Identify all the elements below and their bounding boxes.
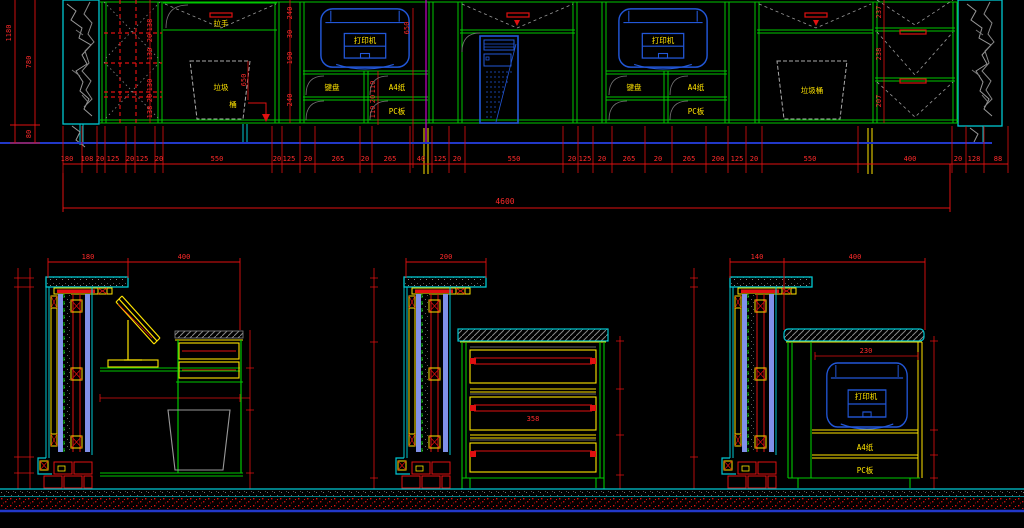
door-handle: [507, 13, 529, 17]
pc-tower-icon: [480, 36, 518, 123]
cad-drawing-sheet: 138 20 130 130 20 138 240 30 190 240 拉手 …: [0, 0, 1024, 528]
dim-label: 125: [283, 155, 296, 163]
dim-label: 125: [579, 155, 592, 163]
stone-pillar-right: [958, 0, 1002, 143]
corner-marks: [166, 5, 688, 120]
dim-label: 140: [751, 253, 764, 261]
lattice-grille: 138 20 130 130 20 138: [104, 0, 162, 123]
dim-label: 20: [361, 155, 369, 163]
a4-label: A4纸: [688, 82, 705, 92]
dim-label: 20: [453, 155, 461, 163]
dim-label: 240: [286, 7, 294, 20]
stone-pillar-left: [63, 0, 99, 147]
dim-label: 20: [155, 155, 163, 163]
printer-label: 打印机: [855, 391, 878, 401]
elevation-view: 138 20 130 130 20 138 240 30 190 240 拉手 …: [0, 0, 1008, 212]
dim-label: 30: [286, 30, 294, 38]
dim-label: 125: [731, 155, 744, 163]
section-detail-a: 180 400: [14, 253, 254, 490]
detail-c-dims: 140 400: [690, 253, 938, 490]
dim-label: 400: [849, 253, 862, 261]
handle-label: 拉手: [214, 18, 229, 28]
dim-label: 20: [146, 34, 154, 42]
base-frame: [100, 473, 243, 476]
drawer-cabinet: 358: [458, 329, 608, 490]
grid-markers-yellow: [424, 128, 872, 174]
bay-pc-tower: [462, 4, 573, 123]
pc-label: PC板: [857, 465, 874, 475]
dim-label: 180: [61, 155, 74, 163]
dim-label: 20: [654, 155, 662, 163]
dim-label: 265: [683, 155, 696, 163]
dim-label: 130: [146, 48, 154, 61]
dim-label: 238: [875, 48, 883, 61]
cad-drawing: 138 20 130 130 20 138 240 30 190 240 拉手 …: [0, 0, 1024, 528]
dim-label: 200: [712, 155, 725, 163]
bin-label: 桶: [229, 99, 237, 109]
dim-label: 550: [211, 155, 224, 163]
dim-label: 20: [369, 95, 377, 103]
pc-label: PC板: [389, 106, 406, 116]
dim-label: 20: [750, 155, 758, 163]
desk-top: [100, 368, 240, 371]
printer-label: 打印机: [652, 35, 675, 45]
dim-label: 190: [286, 52, 294, 65]
dim-label: 125: [434, 155, 447, 163]
bay-drawers: 237 238 207: [875, 0, 953, 123]
printer-cabinet: 230 打印机 A4纸 PC板: [784, 329, 924, 490]
dim-label: 780: [25, 56, 33, 69]
dim-label: 40: [417, 155, 425, 163]
bay-waste-bin: 拉手 垃圾 桶 650: [165, 4, 276, 122]
dim-label: 125: [136, 155, 149, 163]
bin-label: 垃圾桶: [801, 85, 824, 95]
ground-hatch: [0, 489, 1024, 511]
printer-label: 打印机: [354, 35, 377, 45]
dim-label: 20: [954, 155, 962, 163]
bay-waste-bin-2: 垃圾桶: [759, 4, 871, 119]
dim-label: 650: [403, 22, 411, 35]
dim-label: 265: [384, 155, 397, 163]
section-details: 180 400: [14, 253, 938, 490]
dim-label: 20: [568, 155, 576, 163]
dim-label: 108: [81, 155, 94, 163]
keyboard-label: 键盘: [325, 82, 340, 92]
dim-label: 200: [440, 253, 453, 261]
dim-label: 550: [508, 155, 521, 163]
dim-label: 125: [107, 155, 120, 163]
a4-label: A4纸: [389, 82, 406, 92]
dim-label: 207: [875, 95, 883, 108]
detail-b-dims: 200: [370, 253, 624, 490]
bin-label: 垃圾: [214, 82, 229, 92]
dim-label: 265: [332, 155, 345, 163]
dim-label: 180: [82, 253, 95, 261]
dim-label: 138: [146, 106, 154, 119]
dim-label: 240: [286, 94, 294, 107]
dim-label: 20: [304, 155, 312, 163]
dim-label: 80: [25, 130, 33, 138]
section-detail-c: 140 400 230 打印机 A4纸 PC板: [690, 253, 938, 490]
left-dimension-lines: 1180 780 80: [5, 0, 40, 143]
a4-label: A4纸: [857, 442, 874, 452]
door-handle: [805, 13, 827, 17]
dim-label: 400: [904, 155, 917, 163]
pc-label: PC板: [688, 106, 705, 116]
dim-label: 358: [527, 415, 540, 423]
dim-label: 130: [146, 79, 154, 92]
dim-label: 265: [623, 155, 636, 163]
dim-label: 138: [146, 19, 154, 32]
dim-label: 550: [804, 155, 817, 163]
keyboard-label: 键盘: [627, 82, 642, 92]
section-detail-b: 200 358: [370, 253, 624, 490]
dim-label: 400: [178, 253, 191, 261]
keyboard-shelf: [108, 360, 158, 367]
dim-label: 20: [126, 155, 134, 163]
dim-label: 20: [273, 155, 281, 163]
bottom-dimension-chain: 180 108 20 125 20 125 20 550 20 125 20 2…: [61, 126, 1008, 212]
door-handle: [210, 13, 232, 17]
shelf-dim-column: 240 30 190 240: [286, 0, 294, 123]
dim-label: 20: [96, 155, 104, 163]
trash-bin-section: [168, 410, 230, 470]
dim-label: 20: [598, 155, 606, 163]
base-stub: [243, 124, 247, 143]
tilted-monitor: [116, 296, 160, 360]
total-dim-label: 4600: [495, 197, 514, 206]
dim-label: 20: [146, 94, 154, 102]
dim-label: 88: [994, 155, 1002, 163]
dim-label: 650: [240, 74, 248, 87]
drawer-unit: [175, 331, 243, 473]
dim-label: 128: [968, 155, 981, 163]
leader-arrow: [262, 114, 270, 122]
dim-label: 230: [860, 347, 873, 355]
dim-label: 237: [875, 6, 883, 19]
dim-label: 1180: [5, 25, 13, 42]
